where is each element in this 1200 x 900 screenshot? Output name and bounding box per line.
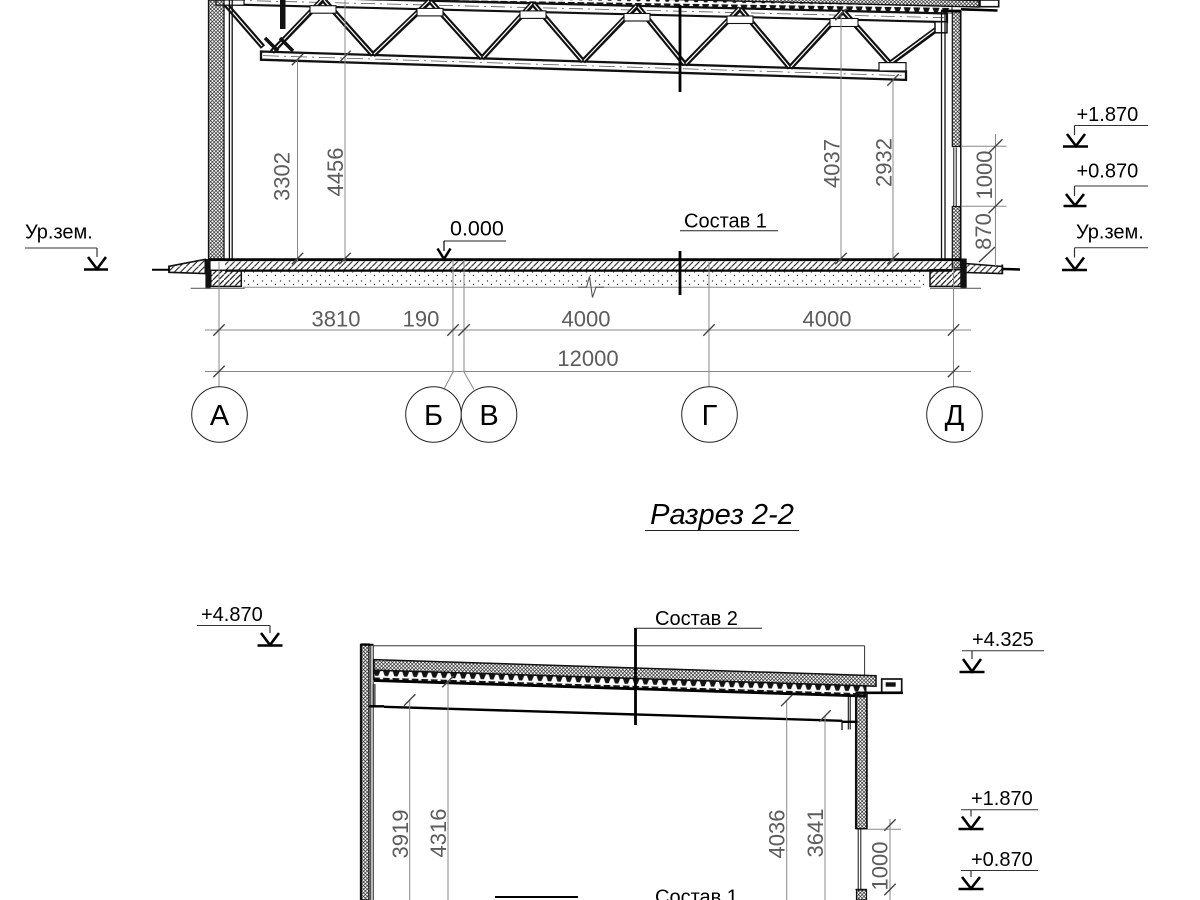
svg-text:12000: 12000 bbox=[557, 346, 618, 371]
svg-text:Ур.зем.: Ур.зем. bbox=[25, 222, 93, 244]
svg-text:4000: 4000 bbox=[562, 307, 611, 332]
svg-text:Д: Д bbox=[945, 400, 965, 432]
svg-text:1000: 1000 bbox=[868, 842, 893, 891]
svg-text:В: В bbox=[479, 400, 498, 432]
svg-text:+4.870: +4.870 bbox=[201, 604, 263, 626]
svg-text:0.000: 0.000 bbox=[450, 217, 504, 241]
svg-text:Г: Г bbox=[702, 400, 718, 432]
svg-text:4316: 4316 bbox=[426, 809, 451, 858]
svg-text:+1.870: +1.870 bbox=[1077, 104, 1139, 126]
svg-text:+1.870: +1.870 bbox=[971, 788, 1033, 810]
svg-text:4456: 4456 bbox=[323, 148, 348, 197]
svg-text:+4.325: +4.325 bbox=[972, 629, 1034, 651]
svg-text:Разрез 2-2: Разрез 2-2 bbox=[650, 499, 794, 531]
svg-text:Ур.зем.: Ур.зем. bbox=[1076, 222, 1144, 244]
svg-text:3641: 3641 bbox=[803, 809, 828, 858]
svg-text:870: 870 bbox=[971, 213, 996, 250]
svg-text:Б: Б bbox=[424, 400, 443, 432]
svg-text:3810: 3810 bbox=[312, 307, 361, 332]
svg-text:А: А bbox=[210, 400, 230, 432]
svg-text:4000: 4000 bbox=[803, 307, 852, 332]
svg-text:+0.870: +0.870 bbox=[971, 849, 1033, 871]
svg-text:2932: 2932 bbox=[872, 138, 897, 187]
svg-text:+0.870: +0.870 bbox=[1077, 161, 1139, 183]
svg-text:1000: 1000 bbox=[972, 151, 997, 200]
svg-text:3302: 3302 bbox=[270, 152, 295, 201]
svg-text:Состав 1: Состав 1 bbox=[684, 211, 767, 233]
svg-text:Состав 1: Состав 1 bbox=[655, 887, 738, 900]
svg-text:Состав 2: Состав 2 bbox=[655, 608, 738, 630]
svg-text:190: 190 bbox=[403, 307, 440, 332]
svg-text:3919: 3919 bbox=[388, 810, 413, 859]
svg-text:4036: 4036 bbox=[765, 810, 790, 859]
svg-text:4037: 4037 bbox=[820, 139, 845, 188]
